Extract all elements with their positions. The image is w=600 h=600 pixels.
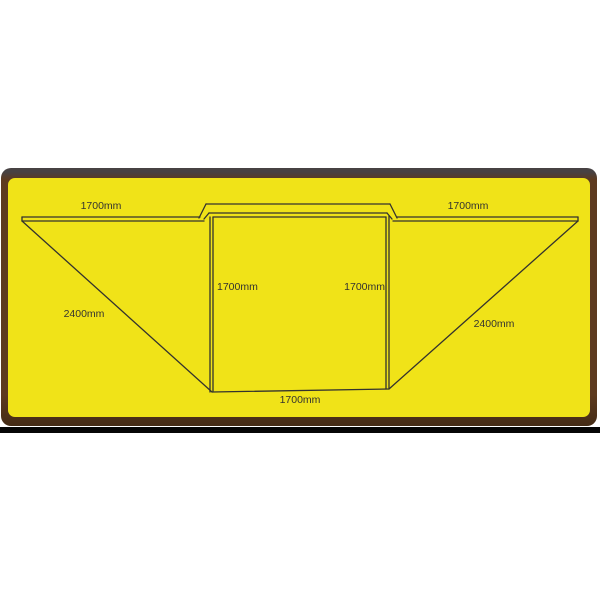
dimension-label-center-left-depth: 1700mm [217, 281, 258, 293]
panel-bottom-shadow [0, 427, 600, 433]
dimension-label-center-bottom-width: 1700mm [265, 394, 335, 406]
dimension-label-left-diagonal: 2400mm [49, 308, 119, 320]
awning-dimension-diagram: 1700mm 1700mm 1700mm 1700mm 1700mm 2400m… [0, 0, 600, 600]
dimension-label-right-diagonal: 2400mm [459, 318, 529, 330]
dimension-label-center-right-depth: 1700mm [315, 281, 385, 293]
dimension-label-left-wing-width: 1700mm [66, 200, 136, 212]
awning-fabric-panel [8, 178, 590, 417]
dimension-label-right-wing-width: 1700mm [433, 200, 503, 212]
